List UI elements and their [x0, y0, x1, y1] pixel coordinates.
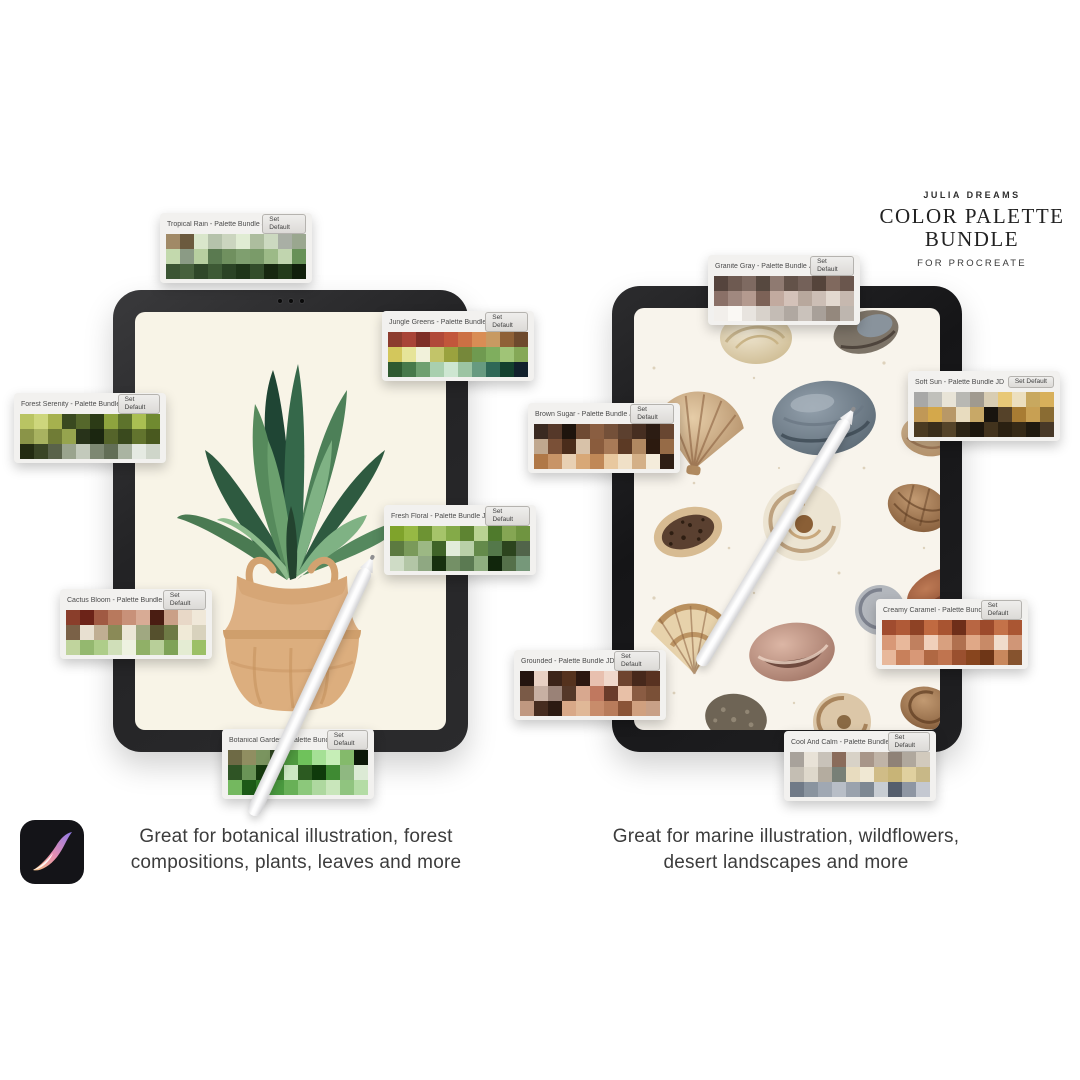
- color-swatch[interactable]: [446, 541, 460, 556]
- color-swatch[interactable]: [790, 782, 804, 797]
- color-swatch[interactable]: [430, 332, 444, 347]
- color-swatch[interactable]: [728, 276, 742, 291]
- color-swatch[interactable]: [416, 332, 430, 347]
- color-swatch[interactable]: [966, 635, 980, 650]
- color-swatch[interactable]: [402, 347, 416, 362]
- color-swatch[interactable]: [48, 414, 62, 429]
- color-swatch[interactable]: [520, 686, 534, 701]
- color-swatch[interactable]: [94, 625, 108, 640]
- color-swatch[interactable]: [874, 752, 888, 767]
- color-swatch[interactable]: [896, 650, 910, 665]
- color-swatch[interactable]: [250, 249, 264, 264]
- color-swatch[interactable]: [576, 686, 590, 701]
- color-swatch[interactable]: [418, 526, 432, 541]
- color-swatch[interactable]: [108, 610, 122, 625]
- color-swatch[interactable]: [104, 444, 118, 459]
- color-swatch[interactable]: [388, 332, 402, 347]
- color-swatch[interactable]: [132, 444, 146, 459]
- color-swatch[interactable]: [122, 610, 136, 625]
- color-swatch[interactable]: [714, 276, 728, 291]
- color-swatch[interactable]: [548, 454, 562, 469]
- color-swatch[interactable]: [460, 541, 474, 556]
- color-swatch[interactable]: [180, 249, 194, 264]
- color-swatch[interactable]: [818, 752, 832, 767]
- color-swatch[interactable]: [888, 782, 902, 797]
- color-swatch[interactable]: [312, 750, 326, 765]
- color-swatch[interactable]: [192, 610, 206, 625]
- color-swatch[interactable]: [1026, 407, 1040, 422]
- color-swatch[interactable]: [534, 424, 548, 439]
- color-swatch[interactable]: [242, 750, 256, 765]
- color-swatch[interactable]: [432, 556, 446, 571]
- color-swatch[interactable]: [534, 686, 548, 701]
- color-swatch[interactable]: [832, 782, 846, 797]
- color-swatch[interactable]: [562, 686, 576, 701]
- color-swatch[interactable]: [122, 625, 136, 640]
- color-swatch[interactable]: [460, 556, 474, 571]
- color-swatch[interactable]: [118, 444, 132, 459]
- color-swatch[interactable]: [984, 392, 998, 407]
- color-swatch[interactable]: [928, 407, 942, 422]
- color-swatch[interactable]: [660, 439, 674, 454]
- color-swatch[interactable]: [340, 780, 354, 795]
- color-swatch[interactable]: [520, 671, 534, 686]
- color-swatch[interactable]: [502, 526, 516, 541]
- color-swatch[interactable]: [860, 782, 874, 797]
- color-swatch[interactable]: [970, 392, 984, 407]
- color-swatch[interactable]: [390, 556, 404, 571]
- color-swatch[interactable]: [902, 767, 916, 782]
- color-swatch[interactable]: [756, 291, 770, 306]
- color-swatch[interactable]: [1012, 407, 1026, 422]
- color-swatch[interactable]: [136, 640, 150, 655]
- color-swatch[interactable]: [192, 625, 206, 640]
- color-swatch[interactable]: [340, 765, 354, 780]
- color-swatch[interactable]: [590, 454, 604, 469]
- color-swatch[interactable]: [104, 429, 118, 444]
- color-swatch[interactable]: [956, 407, 970, 422]
- color-swatch[interactable]: [812, 291, 826, 306]
- color-swatch[interactable]: [66, 610, 80, 625]
- color-swatch[interactable]: [298, 750, 312, 765]
- color-swatch[interactable]: [604, 424, 618, 439]
- color-swatch[interactable]: [910, 635, 924, 650]
- color-swatch[interactable]: [846, 752, 860, 767]
- color-swatch[interactable]: [618, 686, 632, 701]
- color-swatch[interactable]: [882, 620, 896, 635]
- color-swatch[interactable]: [402, 362, 416, 377]
- color-swatch[interactable]: [966, 620, 980, 635]
- color-swatch[interactable]: [404, 556, 418, 571]
- color-swatch[interactable]: [590, 439, 604, 454]
- color-swatch[interactable]: [264, 249, 278, 264]
- color-swatch[interactable]: [956, 392, 970, 407]
- color-swatch[interactable]: [326, 765, 340, 780]
- color-swatch[interactable]: [432, 541, 446, 556]
- color-swatch[interactable]: [20, 414, 34, 429]
- color-swatch[interactable]: [62, 444, 76, 459]
- color-swatch[interactable]: [1026, 422, 1040, 437]
- color-swatch[interactable]: [924, 635, 938, 650]
- color-swatch[interactable]: [1026, 392, 1040, 407]
- color-swatch[interactable]: [416, 362, 430, 377]
- color-swatch[interactable]: [418, 541, 432, 556]
- color-swatch[interactable]: [646, 686, 660, 701]
- color-swatch[interactable]: [354, 780, 368, 795]
- color-swatch[interactable]: [146, 414, 160, 429]
- color-swatch[interactable]: [516, 541, 530, 556]
- color-swatch[interactable]: [998, 422, 1012, 437]
- color-swatch[interactable]: [444, 347, 458, 362]
- color-swatch[interactable]: [548, 686, 562, 701]
- color-swatch[interactable]: [548, 701, 562, 716]
- color-swatch[interactable]: [514, 332, 528, 347]
- color-swatch[interactable]: [236, 249, 250, 264]
- color-swatch[interactable]: [632, 701, 646, 716]
- color-swatch[interactable]: [882, 635, 896, 650]
- color-swatch[interactable]: [604, 454, 618, 469]
- color-swatch[interactable]: [460, 526, 474, 541]
- color-swatch[interactable]: [514, 347, 528, 362]
- color-swatch[interactable]: [952, 635, 966, 650]
- color-swatch[interactable]: [604, 686, 618, 701]
- color-swatch[interactable]: [474, 526, 488, 541]
- color-swatch[interactable]: [742, 306, 756, 321]
- color-swatch[interactable]: [20, 444, 34, 459]
- color-swatch[interactable]: [860, 752, 874, 767]
- color-swatch[interactable]: [472, 332, 486, 347]
- color-swatch[interactable]: [632, 686, 646, 701]
- color-swatch[interactable]: [136, 625, 150, 640]
- color-swatch[interactable]: [832, 752, 846, 767]
- color-swatch[interactable]: [916, 752, 930, 767]
- color-swatch[interactable]: [292, 249, 306, 264]
- set-default-button[interactable]: Set Default: [810, 256, 854, 277]
- color-swatch[interactable]: [326, 750, 340, 765]
- color-swatch[interactable]: [576, 424, 590, 439]
- color-swatch[interactable]: [180, 264, 194, 279]
- color-swatch[interactable]: [1040, 407, 1054, 422]
- color-swatch[interactable]: [388, 362, 402, 377]
- color-swatch[interactable]: [534, 701, 548, 716]
- color-swatch[interactable]: [278, 249, 292, 264]
- color-swatch[interactable]: [474, 541, 488, 556]
- color-swatch[interactable]: [502, 541, 516, 556]
- color-swatch[interactable]: [34, 444, 48, 459]
- color-swatch[interactable]: [980, 635, 994, 650]
- color-swatch[interactable]: [966, 650, 980, 665]
- color-swatch[interactable]: [292, 234, 306, 249]
- color-swatch[interactable]: [488, 526, 502, 541]
- color-swatch[interactable]: [790, 752, 804, 767]
- color-swatch[interactable]: [826, 306, 840, 321]
- color-swatch[interactable]: [938, 635, 952, 650]
- color-swatch[interactable]: [916, 767, 930, 782]
- color-swatch[interactable]: [500, 347, 514, 362]
- color-swatch[interactable]: [632, 424, 646, 439]
- color-swatch[interactable]: [520, 701, 534, 716]
- color-swatch[interactable]: [340, 750, 354, 765]
- color-swatch[interactable]: [178, 625, 192, 640]
- color-swatch[interactable]: [902, 782, 916, 797]
- color-swatch[interactable]: [298, 765, 312, 780]
- color-swatch[interactable]: [312, 780, 326, 795]
- color-swatch[interactable]: [298, 780, 312, 795]
- color-swatch[interactable]: [840, 276, 854, 291]
- color-swatch[interactable]: [742, 276, 756, 291]
- color-swatch[interactable]: [660, 454, 674, 469]
- color-swatch[interactable]: [76, 444, 90, 459]
- color-swatch[interactable]: [516, 556, 530, 571]
- color-swatch[interactable]: [548, 671, 562, 686]
- color-swatch[interactable]: [208, 234, 222, 249]
- color-swatch[interactable]: [1012, 392, 1026, 407]
- color-swatch[interactable]: [472, 362, 486, 377]
- color-swatch[interactable]: [326, 780, 340, 795]
- color-swatch[interactable]: [446, 526, 460, 541]
- color-swatch[interactable]: [446, 556, 460, 571]
- color-swatch[interactable]: [432, 526, 446, 541]
- color-swatch[interactable]: [80, 625, 94, 640]
- color-swatch[interactable]: [534, 671, 548, 686]
- color-swatch[interactable]: [194, 249, 208, 264]
- color-swatch[interactable]: [970, 407, 984, 422]
- color-swatch[interactable]: [104, 414, 118, 429]
- color-swatch[interactable]: [938, 650, 952, 665]
- color-swatch[interactable]: [994, 635, 1008, 650]
- color-swatch[interactable]: [516, 526, 530, 541]
- color-swatch[interactable]: [840, 291, 854, 306]
- color-swatch[interactable]: [632, 439, 646, 454]
- color-swatch[interactable]: [458, 347, 472, 362]
- color-swatch[interactable]: [846, 767, 860, 782]
- color-swatch[interactable]: [818, 767, 832, 782]
- color-swatch[interactable]: [994, 650, 1008, 665]
- color-swatch[interactable]: [500, 332, 514, 347]
- color-swatch[interactable]: [34, 414, 48, 429]
- color-swatch[interactable]: [798, 276, 812, 291]
- set-default-button[interactable]: Set Default: [262, 214, 306, 235]
- set-default-button[interactable]: Set Default: [888, 732, 931, 753]
- color-swatch[interactable]: [896, 635, 910, 650]
- color-swatch[interactable]: [916, 782, 930, 797]
- color-swatch[interactable]: [804, 782, 818, 797]
- set-default-button[interactable]: Set Default: [485, 312, 528, 333]
- color-swatch[interactable]: [486, 362, 500, 377]
- color-swatch[interactable]: [164, 640, 178, 655]
- color-swatch[interactable]: [576, 454, 590, 469]
- color-swatch[interactable]: [430, 347, 444, 362]
- color-swatch[interactable]: [910, 620, 924, 635]
- color-swatch[interactable]: [770, 276, 784, 291]
- set-default-button[interactable]: Set Default: [485, 506, 530, 527]
- color-swatch[interactable]: [236, 234, 250, 249]
- color-swatch[interactable]: [888, 767, 902, 782]
- color-swatch[interactable]: [714, 291, 728, 306]
- color-swatch[interactable]: [798, 291, 812, 306]
- color-swatch[interactable]: [896, 620, 910, 635]
- color-swatch[interactable]: [812, 306, 826, 321]
- color-swatch[interactable]: [118, 429, 132, 444]
- color-swatch[interactable]: [416, 347, 430, 362]
- color-swatch[interactable]: [562, 424, 576, 439]
- color-swatch[interactable]: [228, 765, 242, 780]
- color-swatch[interactable]: [90, 429, 104, 444]
- color-swatch[interactable]: [62, 429, 76, 444]
- color-swatch[interactable]: [136, 610, 150, 625]
- color-swatch[interactable]: [826, 276, 840, 291]
- set-default-button[interactable]: Set Default: [630, 404, 674, 425]
- color-swatch[interactable]: [590, 424, 604, 439]
- color-swatch[interactable]: [150, 610, 164, 625]
- set-default-button[interactable]: Set Default: [327, 730, 368, 751]
- color-swatch[interactable]: [576, 671, 590, 686]
- color-swatch[interactable]: [548, 424, 562, 439]
- color-swatch[interactable]: [222, 234, 236, 249]
- color-swatch[interactable]: [1040, 392, 1054, 407]
- color-swatch[interactable]: [402, 332, 416, 347]
- color-swatch[interactable]: [956, 422, 970, 437]
- color-swatch[interactable]: [164, 625, 178, 640]
- color-swatch[interactable]: [646, 424, 660, 439]
- color-swatch[interactable]: [194, 264, 208, 279]
- color-swatch[interactable]: [826, 291, 840, 306]
- color-swatch[interactable]: [770, 306, 784, 321]
- color-swatch[interactable]: [590, 671, 604, 686]
- color-swatch[interactable]: [562, 439, 576, 454]
- color-swatch[interactable]: [756, 306, 770, 321]
- color-swatch[interactable]: [882, 650, 896, 665]
- color-swatch[interactable]: [618, 424, 632, 439]
- color-swatch[interactable]: [390, 541, 404, 556]
- color-swatch[interactable]: [1008, 620, 1022, 635]
- color-swatch[interactable]: [784, 291, 798, 306]
- color-swatch[interactable]: [76, 429, 90, 444]
- color-swatch[interactable]: [208, 264, 222, 279]
- color-swatch[interactable]: [874, 782, 888, 797]
- color-swatch[interactable]: [354, 750, 368, 765]
- color-swatch[interactable]: [194, 234, 208, 249]
- color-swatch[interactable]: [562, 454, 576, 469]
- color-swatch[interactable]: [284, 765, 298, 780]
- color-swatch[interactable]: [486, 332, 500, 347]
- color-swatch[interactable]: [618, 701, 632, 716]
- color-swatch[interactable]: [34, 429, 48, 444]
- color-swatch[interactable]: [228, 750, 242, 765]
- color-swatch[interactable]: [264, 234, 278, 249]
- color-swatch[interactable]: [646, 701, 660, 716]
- color-swatch[interactable]: [20, 429, 34, 444]
- color-swatch[interactable]: [514, 362, 528, 377]
- color-swatch[interactable]: [228, 780, 242, 795]
- color-swatch[interactable]: [80, 610, 94, 625]
- color-swatch[interactable]: [804, 767, 818, 782]
- color-swatch[interactable]: [910, 650, 924, 665]
- color-swatch[interactable]: [832, 767, 846, 782]
- color-swatch[interactable]: [1040, 422, 1054, 437]
- color-swatch[interactable]: [236, 264, 250, 279]
- color-swatch[interactable]: [146, 429, 160, 444]
- color-swatch[interactable]: [472, 347, 486, 362]
- color-swatch[interactable]: [902, 752, 916, 767]
- color-swatch[interactable]: [458, 332, 472, 347]
- set-default-button[interactable]: Set Default: [614, 651, 660, 672]
- color-swatch[interactable]: [62, 414, 76, 429]
- color-swatch[interactable]: [770, 291, 784, 306]
- color-swatch[interactable]: [562, 701, 576, 716]
- color-swatch[interactable]: [928, 422, 942, 437]
- color-swatch[interactable]: [166, 249, 180, 264]
- color-swatch[interactable]: [404, 526, 418, 541]
- color-swatch[interactable]: [66, 640, 80, 655]
- color-swatch[interactable]: [590, 701, 604, 716]
- color-swatch[interactable]: [576, 701, 590, 716]
- color-swatch[interactable]: [118, 414, 132, 429]
- color-swatch[interactable]: [208, 249, 222, 264]
- color-swatch[interactable]: [604, 439, 618, 454]
- color-swatch[interactable]: [984, 407, 998, 422]
- color-swatch[interactable]: [122, 640, 136, 655]
- color-swatch[interactable]: [178, 610, 192, 625]
- color-swatch[interactable]: [714, 306, 728, 321]
- color-swatch[interactable]: [576, 439, 590, 454]
- set-default-button[interactable]: Set Default: [118, 394, 160, 415]
- color-swatch[interactable]: [166, 234, 180, 249]
- color-swatch[interactable]: [390, 526, 404, 541]
- set-default-button[interactable]: Set Default: [981, 600, 1022, 621]
- color-swatch[interactable]: [150, 625, 164, 640]
- color-swatch[interactable]: [924, 650, 938, 665]
- color-swatch[interactable]: [534, 439, 548, 454]
- color-swatch[interactable]: [618, 439, 632, 454]
- color-swatch[interactable]: [48, 444, 62, 459]
- color-swatch[interactable]: [278, 264, 292, 279]
- color-swatch[interactable]: [984, 422, 998, 437]
- color-swatch[interactable]: [756, 276, 770, 291]
- color-swatch[interactable]: [646, 671, 660, 686]
- color-swatch[interactable]: [500, 362, 514, 377]
- color-swatch[interactable]: [888, 752, 902, 767]
- color-swatch[interactable]: [562, 671, 576, 686]
- color-swatch[interactable]: [590, 686, 604, 701]
- color-swatch[interactable]: [488, 556, 502, 571]
- color-swatch[interactable]: [76, 414, 90, 429]
- color-swatch[interactable]: [728, 291, 742, 306]
- color-swatch[interactable]: [980, 620, 994, 635]
- color-swatch[interactable]: [928, 392, 942, 407]
- color-swatch[interactable]: [150, 640, 164, 655]
- color-swatch[interactable]: [728, 306, 742, 321]
- color-swatch[interactable]: [604, 701, 618, 716]
- color-swatch[interactable]: [474, 556, 488, 571]
- color-swatch[interactable]: [618, 454, 632, 469]
- color-swatch[interactable]: [404, 541, 418, 556]
- color-swatch[interactable]: [840, 306, 854, 321]
- color-swatch[interactable]: [108, 625, 122, 640]
- color-swatch[interactable]: [646, 439, 660, 454]
- color-swatch[interactable]: [94, 610, 108, 625]
- color-swatch[interactable]: [660, 424, 674, 439]
- color-swatch[interactable]: [80, 640, 94, 655]
- color-swatch[interactable]: [192, 640, 206, 655]
- color-swatch[interactable]: [646, 454, 660, 469]
- color-swatch[interactable]: [502, 556, 516, 571]
- color-swatch[interactable]: [222, 264, 236, 279]
- color-swatch[interactable]: [486, 347, 500, 362]
- color-swatch[interactable]: [430, 362, 444, 377]
- color-swatch[interactable]: [180, 234, 194, 249]
- color-swatch[interactable]: [1008, 650, 1022, 665]
